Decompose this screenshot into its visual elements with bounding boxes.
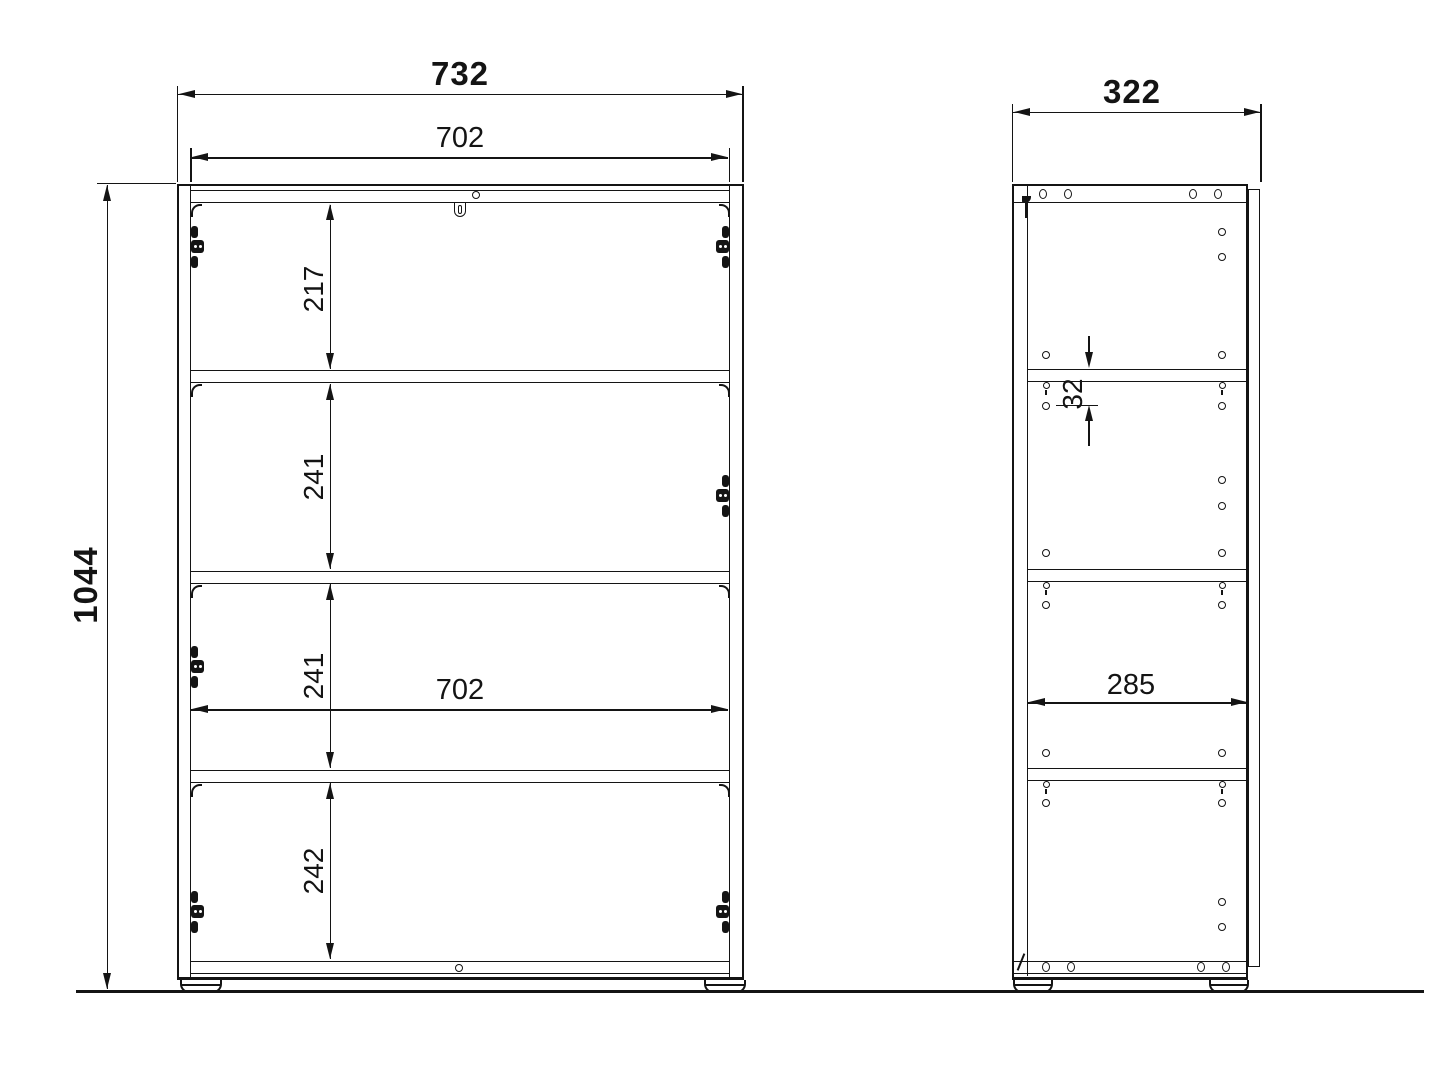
cam-fitting-icon: [191, 891, 206, 933]
drill-hole-icon: [1218, 476, 1226, 484]
shelf-corner-mark: [191, 204, 202, 217]
shelf-pin-icon: [1042, 582, 1051, 595]
shelf-line: [191, 583, 729, 585]
dimension-line: [178, 94, 743, 96]
dimension-line: [1028, 702, 1248, 704]
drill-hole-icon: [1218, 351, 1226, 359]
drill-hole-icon: [1218, 549, 1226, 557]
arrowhead-icon: [192, 705, 208, 713]
dim-label-side-shelf-hole-offset: 32: [1057, 364, 1089, 424]
arrowhead-icon: [1014, 108, 1030, 116]
dimension-line: [1013, 112, 1261, 114]
arrowhead-icon: [1029, 698, 1045, 706]
shelf-pin-icon: [1218, 582, 1227, 595]
dim-label-compartment-1: 217: [297, 249, 331, 329]
arrowhead-icon: [711, 705, 727, 713]
drill-hole-icon: [1218, 749, 1226, 757]
arrowhead-icon: [326, 943, 334, 959]
drill-hole-icon: [1042, 402, 1050, 410]
arrowhead-icon: [103, 185, 111, 201]
dimension-line: [107, 185, 109, 989]
shelf-line: [1028, 569, 1248, 571]
screw-icon: [1214, 189, 1222, 199]
cam-fitting-icon: [191, 646, 206, 688]
top-panel-line: [1014, 202, 1248, 204]
dim-label-front-overall-height: 1044: [66, 515, 106, 655]
bottom-panel-line: [1014, 961, 1248, 963]
shelf-pin-icon: [1218, 781, 1227, 794]
shelf-line: [191, 770, 729, 772]
arrowhead-icon: [326, 553, 334, 569]
shelf-line: [191, 571, 729, 573]
drill-hole-icon: [1042, 351, 1050, 359]
arrowhead-icon: [192, 153, 208, 161]
top-panel-line: [191, 190, 729, 192]
arrowhead-icon: [711, 153, 727, 161]
cabinet-technical-drawing: 732 702 1044: [0, 0, 1430, 1072]
wall-bracket-hook-icon: [1025, 202, 1027, 218]
extension-line: [177, 86, 179, 182]
drill-hole-icon: [1218, 799, 1226, 807]
shelf-corner-mark: [191, 784, 202, 797]
bottom-panel-line: [1014, 973, 1248, 975]
screw-hole-icon: [455, 964, 463, 972]
cam-fitting-icon: [714, 475, 729, 517]
cam-fitting-icon: [714, 226, 729, 268]
drill-hole-icon: [1042, 549, 1050, 557]
drill-hole-icon: [1218, 502, 1226, 510]
back-panel: [1248, 189, 1260, 967]
arrowhead-icon: [326, 752, 334, 768]
arrowhead-icon: [103, 973, 111, 989]
shelf-pin-icon: [1042, 781, 1051, 794]
arrowhead-icon: [326, 783, 334, 799]
extension-line: [97, 183, 176, 185]
extension-line: [729, 148, 731, 182]
arrowhead-icon: [179, 90, 195, 98]
dimension-line: [191, 157, 728, 159]
arrowhead-icon: [326, 353, 334, 369]
dim-label-side-overall-depth: 322: [1057, 75, 1207, 108]
drill-hole-icon: [1218, 253, 1226, 261]
ground-line: [76, 990, 1424, 993]
drill-hole-icon: [1218, 228, 1226, 236]
arrowhead-icon: [326, 584, 334, 600]
extension-line: [1260, 104, 1262, 182]
screw-icon: [1222, 962, 1230, 972]
screw-icon: [1064, 189, 1072, 199]
drill-hole-icon: [1042, 799, 1050, 807]
shelf-line: [191, 370, 729, 372]
dim-label-front-inner-width-top: 702: [380, 124, 540, 153]
drill-hole-icon: [1042, 601, 1050, 609]
screw-icon: [1039, 189, 1047, 199]
arrowhead-icon: [1244, 108, 1260, 116]
screw-icon: [1197, 962, 1205, 972]
screw-icon: [1042, 962, 1050, 972]
shelf-line: [1028, 768, 1248, 770]
screw-icon: [1067, 962, 1075, 972]
shelf-corner-mark: [191, 585, 202, 598]
dim-label-front-overall-width: 732: [380, 57, 540, 90]
dim-label-side-inner-depth: 285: [1056, 671, 1206, 700]
arrowhead-icon: [726, 90, 742, 98]
shelf-line: [191, 782, 729, 784]
screw-hole-icon: [472, 191, 480, 199]
extension-line: [742, 86, 744, 182]
dimension-line: [191, 709, 728, 711]
shelf-line: [1028, 581, 1248, 583]
dim-label-compartment-4: 242: [297, 831, 331, 911]
drill-hole-icon: [1218, 923, 1226, 931]
drill-hole-icon: [1042, 749, 1050, 757]
shelf-line: [1028, 780, 1248, 782]
shelf-corner-mark: [191, 384, 202, 397]
keyhole-slot-icon: [458, 205, 462, 214]
screw-icon: [1189, 189, 1197, 199]
dim-label-front-inner-width-middle: 702: [380, 676, 540, 705]
drill-hole-icon: [1218, 898, 1226, 906]
drill-hole-icon: [1218, 402, 1226, 410]
side-panel-inner-line: [729, 186, 731, 978]
shelf-pin-icon: [1042, 382, 1051, 395]
dim-label-compartment-2: 241: [297, 437, 331, 517]
arrowhead-icon: [1231, 698, 1247, 706]
arrowhead-icon: [326, 204, 334, 220]
cam-fitting-icon: [191, 226, 206, 268]
cam-fitting-icon: [714, 891, 729, 933]
shelf-pin-icon: [1218, 382, 1227, 395]
arrowhead-icon: [326, 384, 334, 400]
bottom-panel-line: [191, 961, 729, 963]
extension-line: [1012, 104, 1014, 182]
dim-label-compartment-3: 241: [297, 636, 331, 716]
bottom-panel-line: [191, 973, 729, 975]
shelf-line: [191, 382, 729, 384]
drill-hole-icon: [1218, 601, 1226, 609]
